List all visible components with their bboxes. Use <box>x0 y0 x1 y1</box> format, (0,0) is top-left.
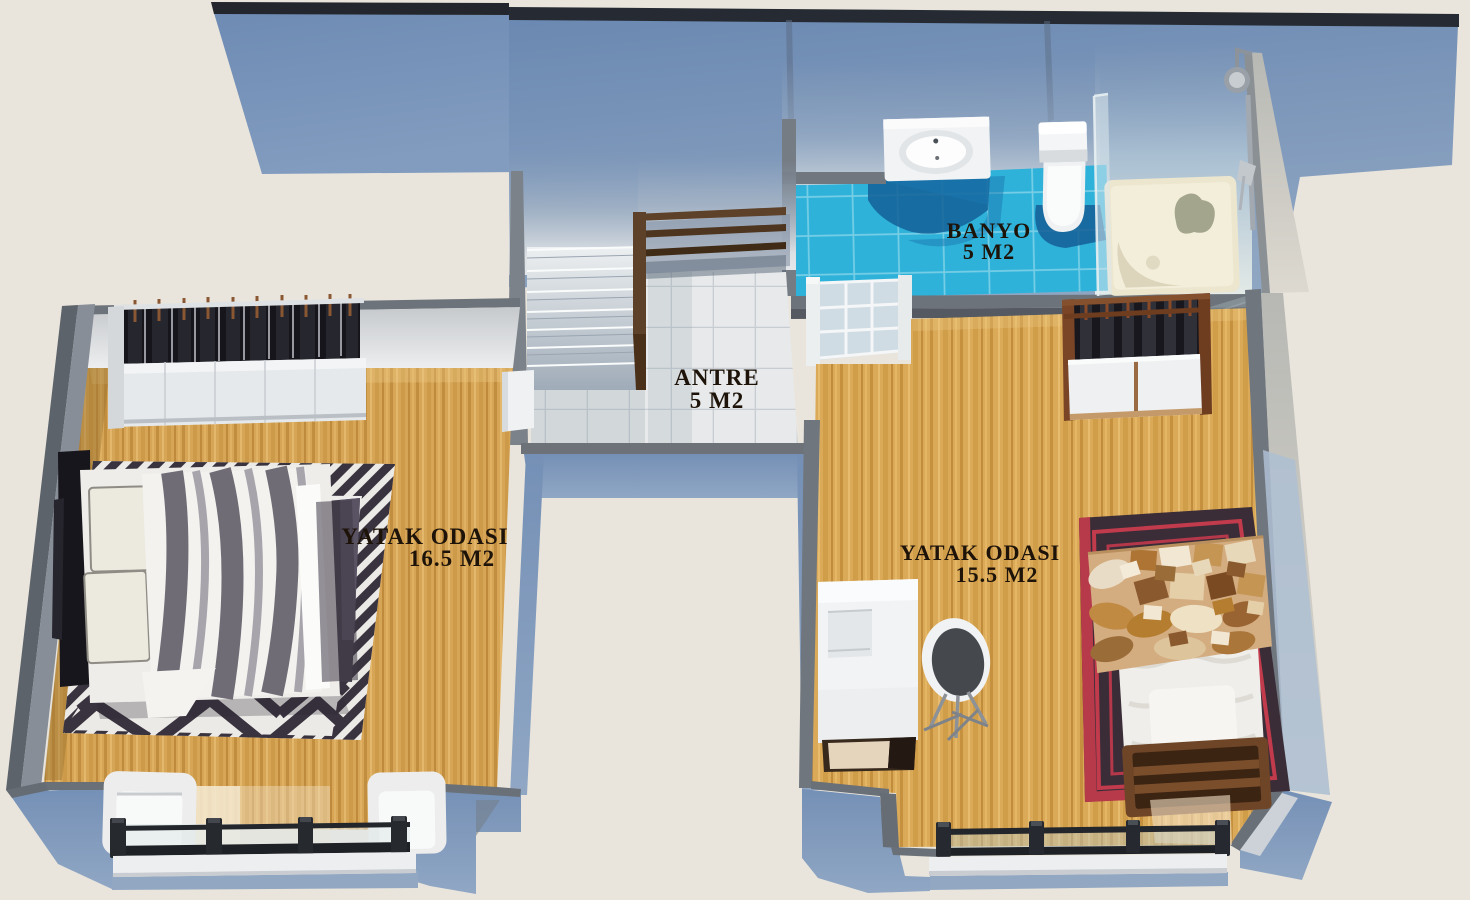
svg-text:15.5 M2: 15.5 M2 <box>956 562 1039 587</box>
svg-text:16.5 M2: 16.5 M2 <box>409 546 495 571</box>
svg-text:5 M2: 5 M2 <box>690 388 744 413</box>
svg-text:5 M2: 5 M2 <box>963 239 1015 264</box>
svg-text:ANTRE: ANTRE <box>674 365 760 390</box>
